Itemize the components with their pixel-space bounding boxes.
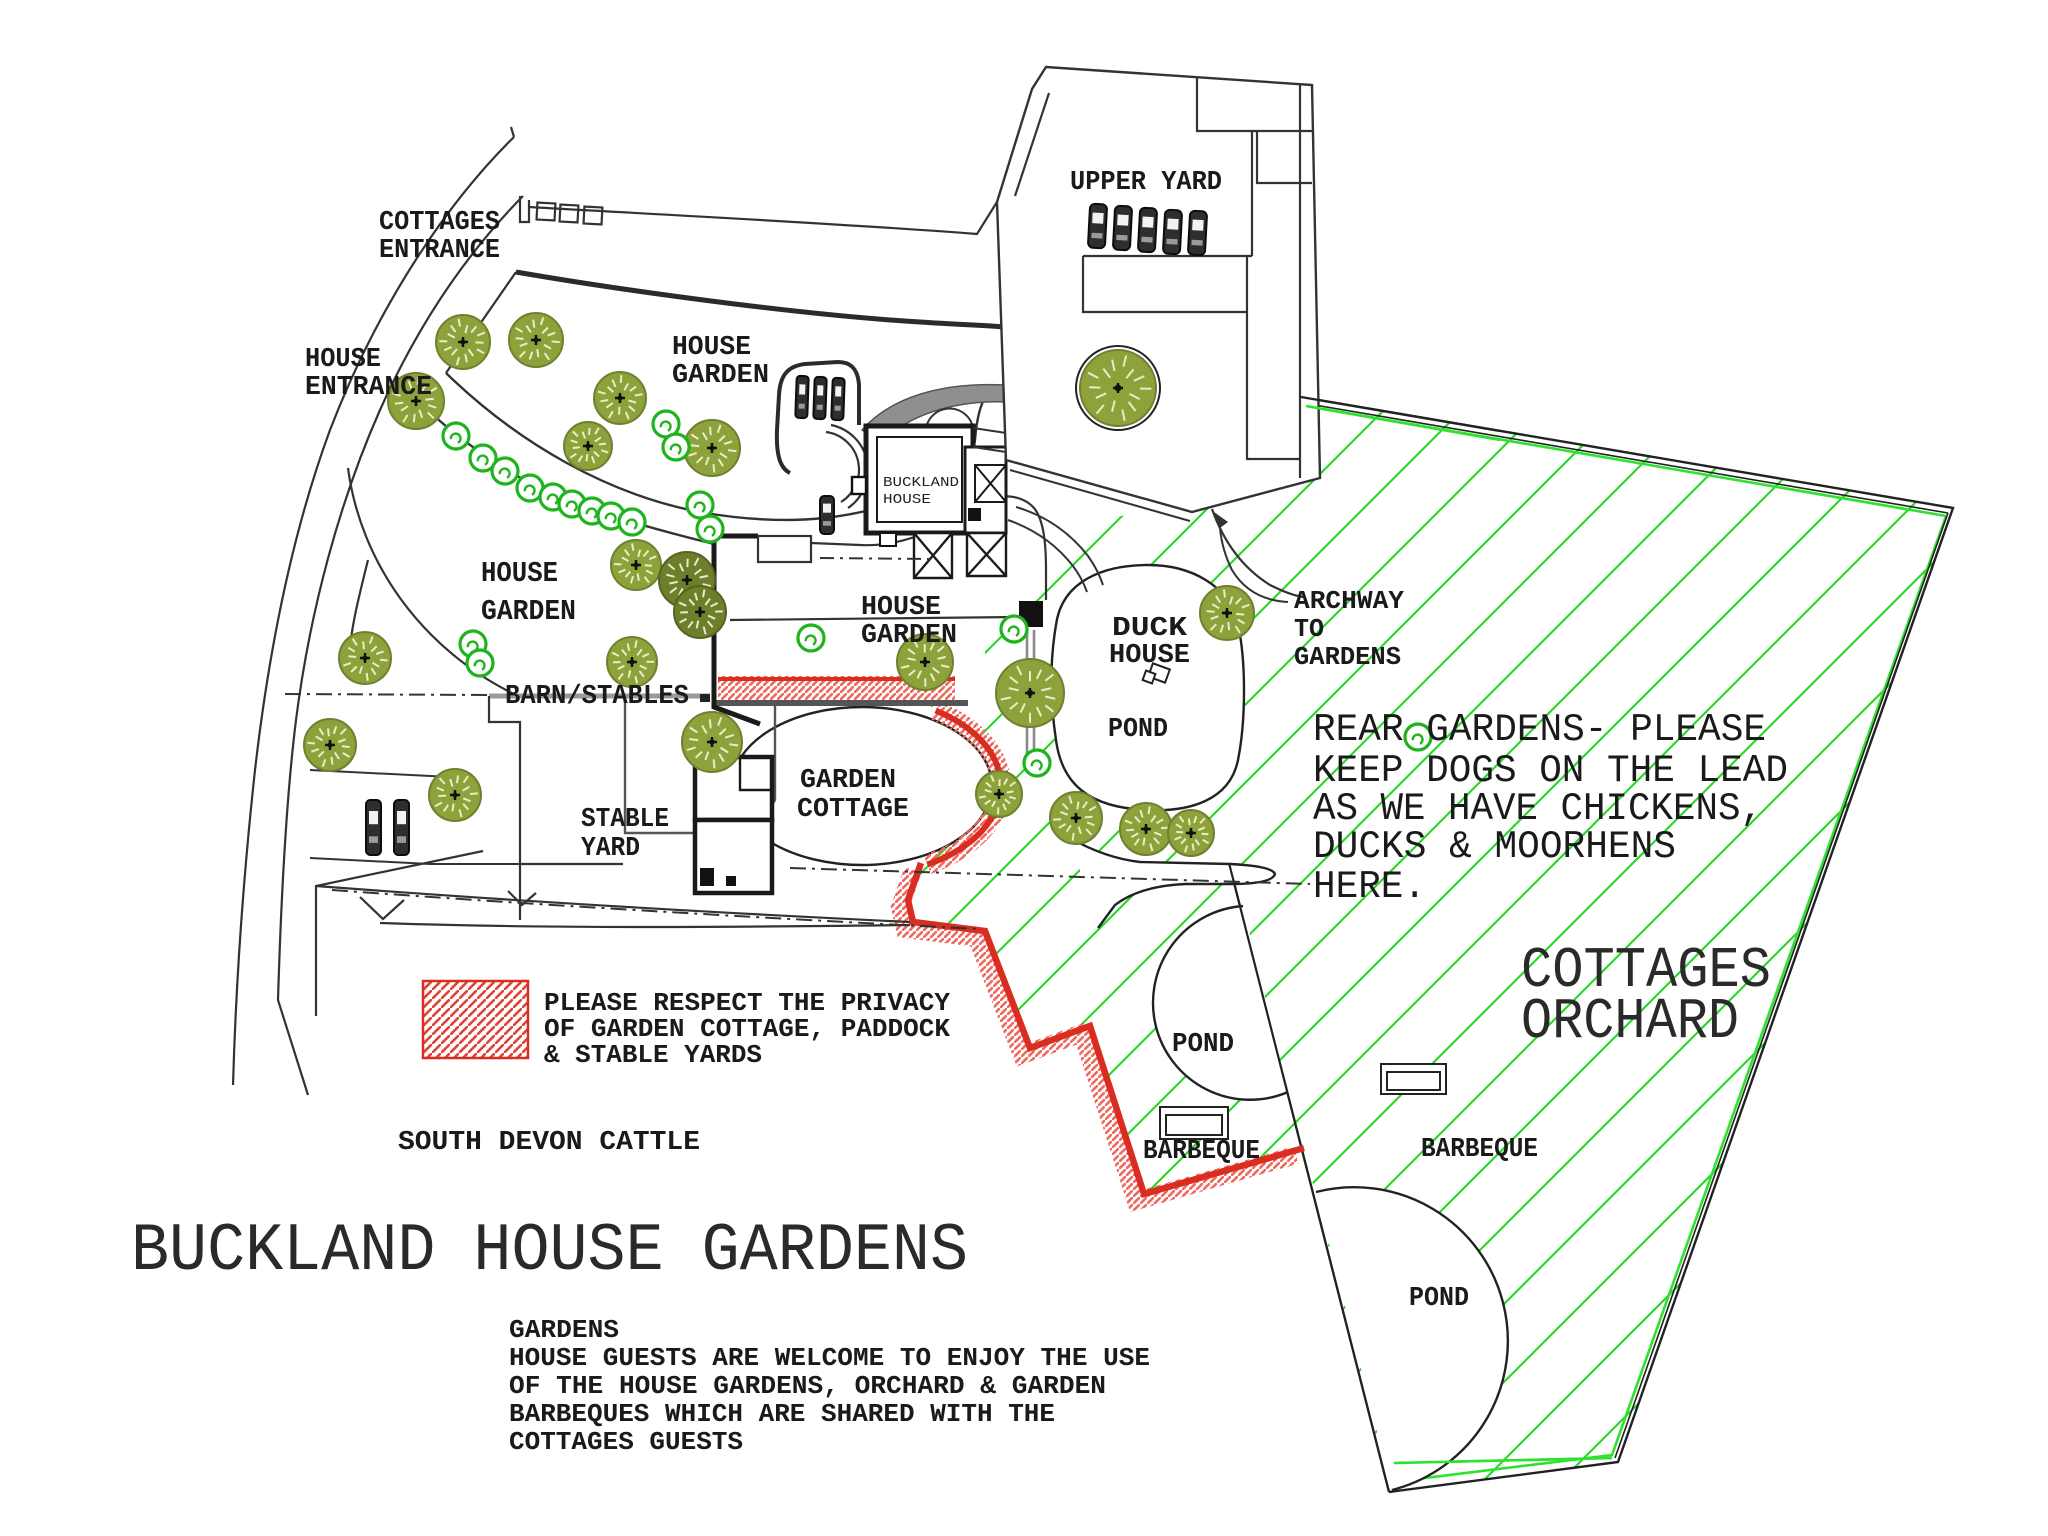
- svg-text:HERE.: HERE.: [1313, 865, 1426, 909]
- svg-text:COTTAGES: COTTAGES: [379, 208, 500, 238]
- svg-text:HOUSE: HOUSE: [481, 557, 558, 590]
- svg-text:GARDEN: GARDEN: [481, 595, 576, 628]
- svg-text:COTTAGE: COTTAGE: [797, 795, 909, 825]
- svg-text:BARBEQUE: BARBEQUE: [1421, 1135, 1538, 1165]
- svg-text:GARDENS: GARDENS: [509, 1315, 619, 1345]
- svg-text:DUCK: DUCK: [1112, 614, 1188, 644]
- svg-text:SOUTH DEVON CATTLE: SOUTH DEVON CATTLE: [398, 1128, 700, 1158]
- svg-text:STABLE: STABLE: [581, 805, 669, 835]
- svg-text:BUCKLAND: BUCKLAND: [883, 475, 959, 491]
- svg-text:BARN/STABLES: BARN/STABLES: [505, 682, 689, 712]
- svg-text:OF THE HOUSE GARDENS, ORCHARD: OF THE HOUSE GARDENS, ORCHARD & GARDEN: [509, 1371, 1106, 1401]
- svg-text:BUCKLAND HOUSE GARDENS: BUCKLAND HOUSE GARDENS: [131, 1213, 968, 1290]
- svg-text:ORCHARD: ORCHARD: [1521, 991, 1739, 1055]
- svg-text:ARCHWAY: ARCHWAY: [1294, 586, 1404, 616]
- svg-text:BARBEQUE: BARBEQUE: [1143, 1137, 1260, 1167]
- svg-text:GARDEN: GARDEN: [861, 621, 957, 651]
- svg-text:HOUSE GUESTS ARE WELCOME TO EN: HOUSE GUESTS ARE WELCOME TO ENJOY THE US…: [509, 1343, 1150, 1373]
- svg-text:HOUSE: HOUSE: [883, 492, 931, 508]
- svg-text:POND: POND: [1172, 1030, 1234, 1060]
- svg-text:HOUSE: HOUSE: [672, 333, 751, 363]
- svg-text:UPPER YARD: UPPER YARD: [1070, 168, 1222, 198]
- svg-text:HOUSE: HOUSE: [861, 593, 941, 623]
- svg-text:& STABLE YARDS: & STABLE YARDS: [544, 1040, 762, 1070]
- svg-text:ENTRANCE: ENTRANCE: [305, 373, 432, 403]
- svg-text:HOUSE: HOUSE: [305, 345, 381, 375]
- svg-text:HOUSE: HOUSE: [1109, 641, 1190, 671]
- svg-text:ENTRANCE: ENTRANCE: [379, 236, 500, 266]
- svg-text:REAR GARDENS- PLEASE: REAR GARDENS- PLEASE: [1313, 708, 1766, 752]
- svg-text:YARD: YARD: [581, 834, 640, 864]
- svg-text:GARDENS: GARDENS: [1294, 642, 1401, 672]
- svg-text:POND: POND: [1409, 1284, 1469, 1314]
- svg-text:COTTAGES GUESTS: COTTAGES GUESTS: [509, 1427, 743, 1457]
- svg-text:DUCKS & MOORHENS: DUCKS & MOORHENS: [1313, 825, 1676, 869]
- svg-text:BARBEQUES WHICH ARE SHARED WIT: BARBEQUES WHICH ARE SHARED WITH THE: [509, 1399, 1055, 1429]
- svg-text:TO: TO: [1294, 614, 1324, 644]
- svg-text:POND: POND: [1108, 715, 1168, 745]
- svg-text:GARDEN: GARDEN: [672, 361, 769, 391]
- svg-text:GARDEN: GARDEN: [800, 766, 896, 796]
